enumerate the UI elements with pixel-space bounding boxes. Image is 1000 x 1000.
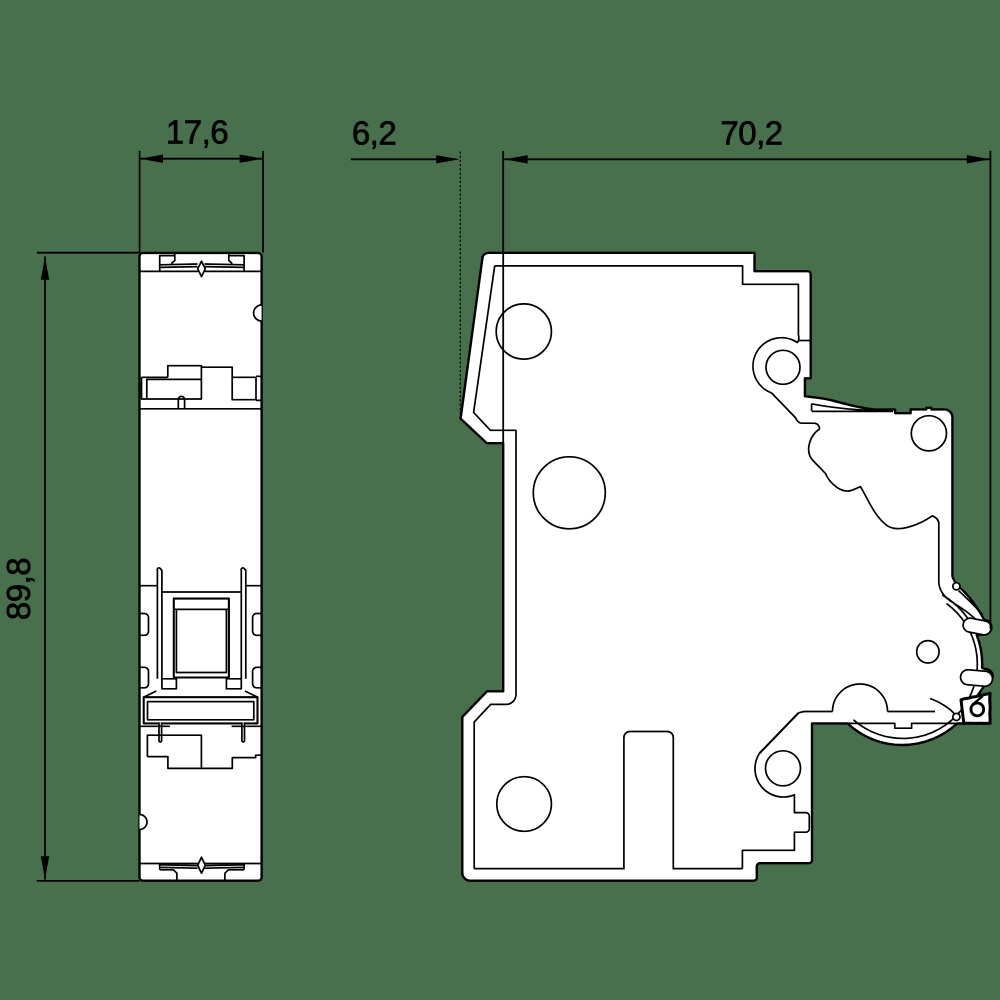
svg-text:70,2: 70,2 — [720, 115, 782, 152]
svg-text:6,2: 6,2 — [352, 115, 396, 152]
svg-text:17,6: 17,6 — [166, 114, 228, 151]
svg-text:89,8: 89,8 — [0, 558, 37, 620]
